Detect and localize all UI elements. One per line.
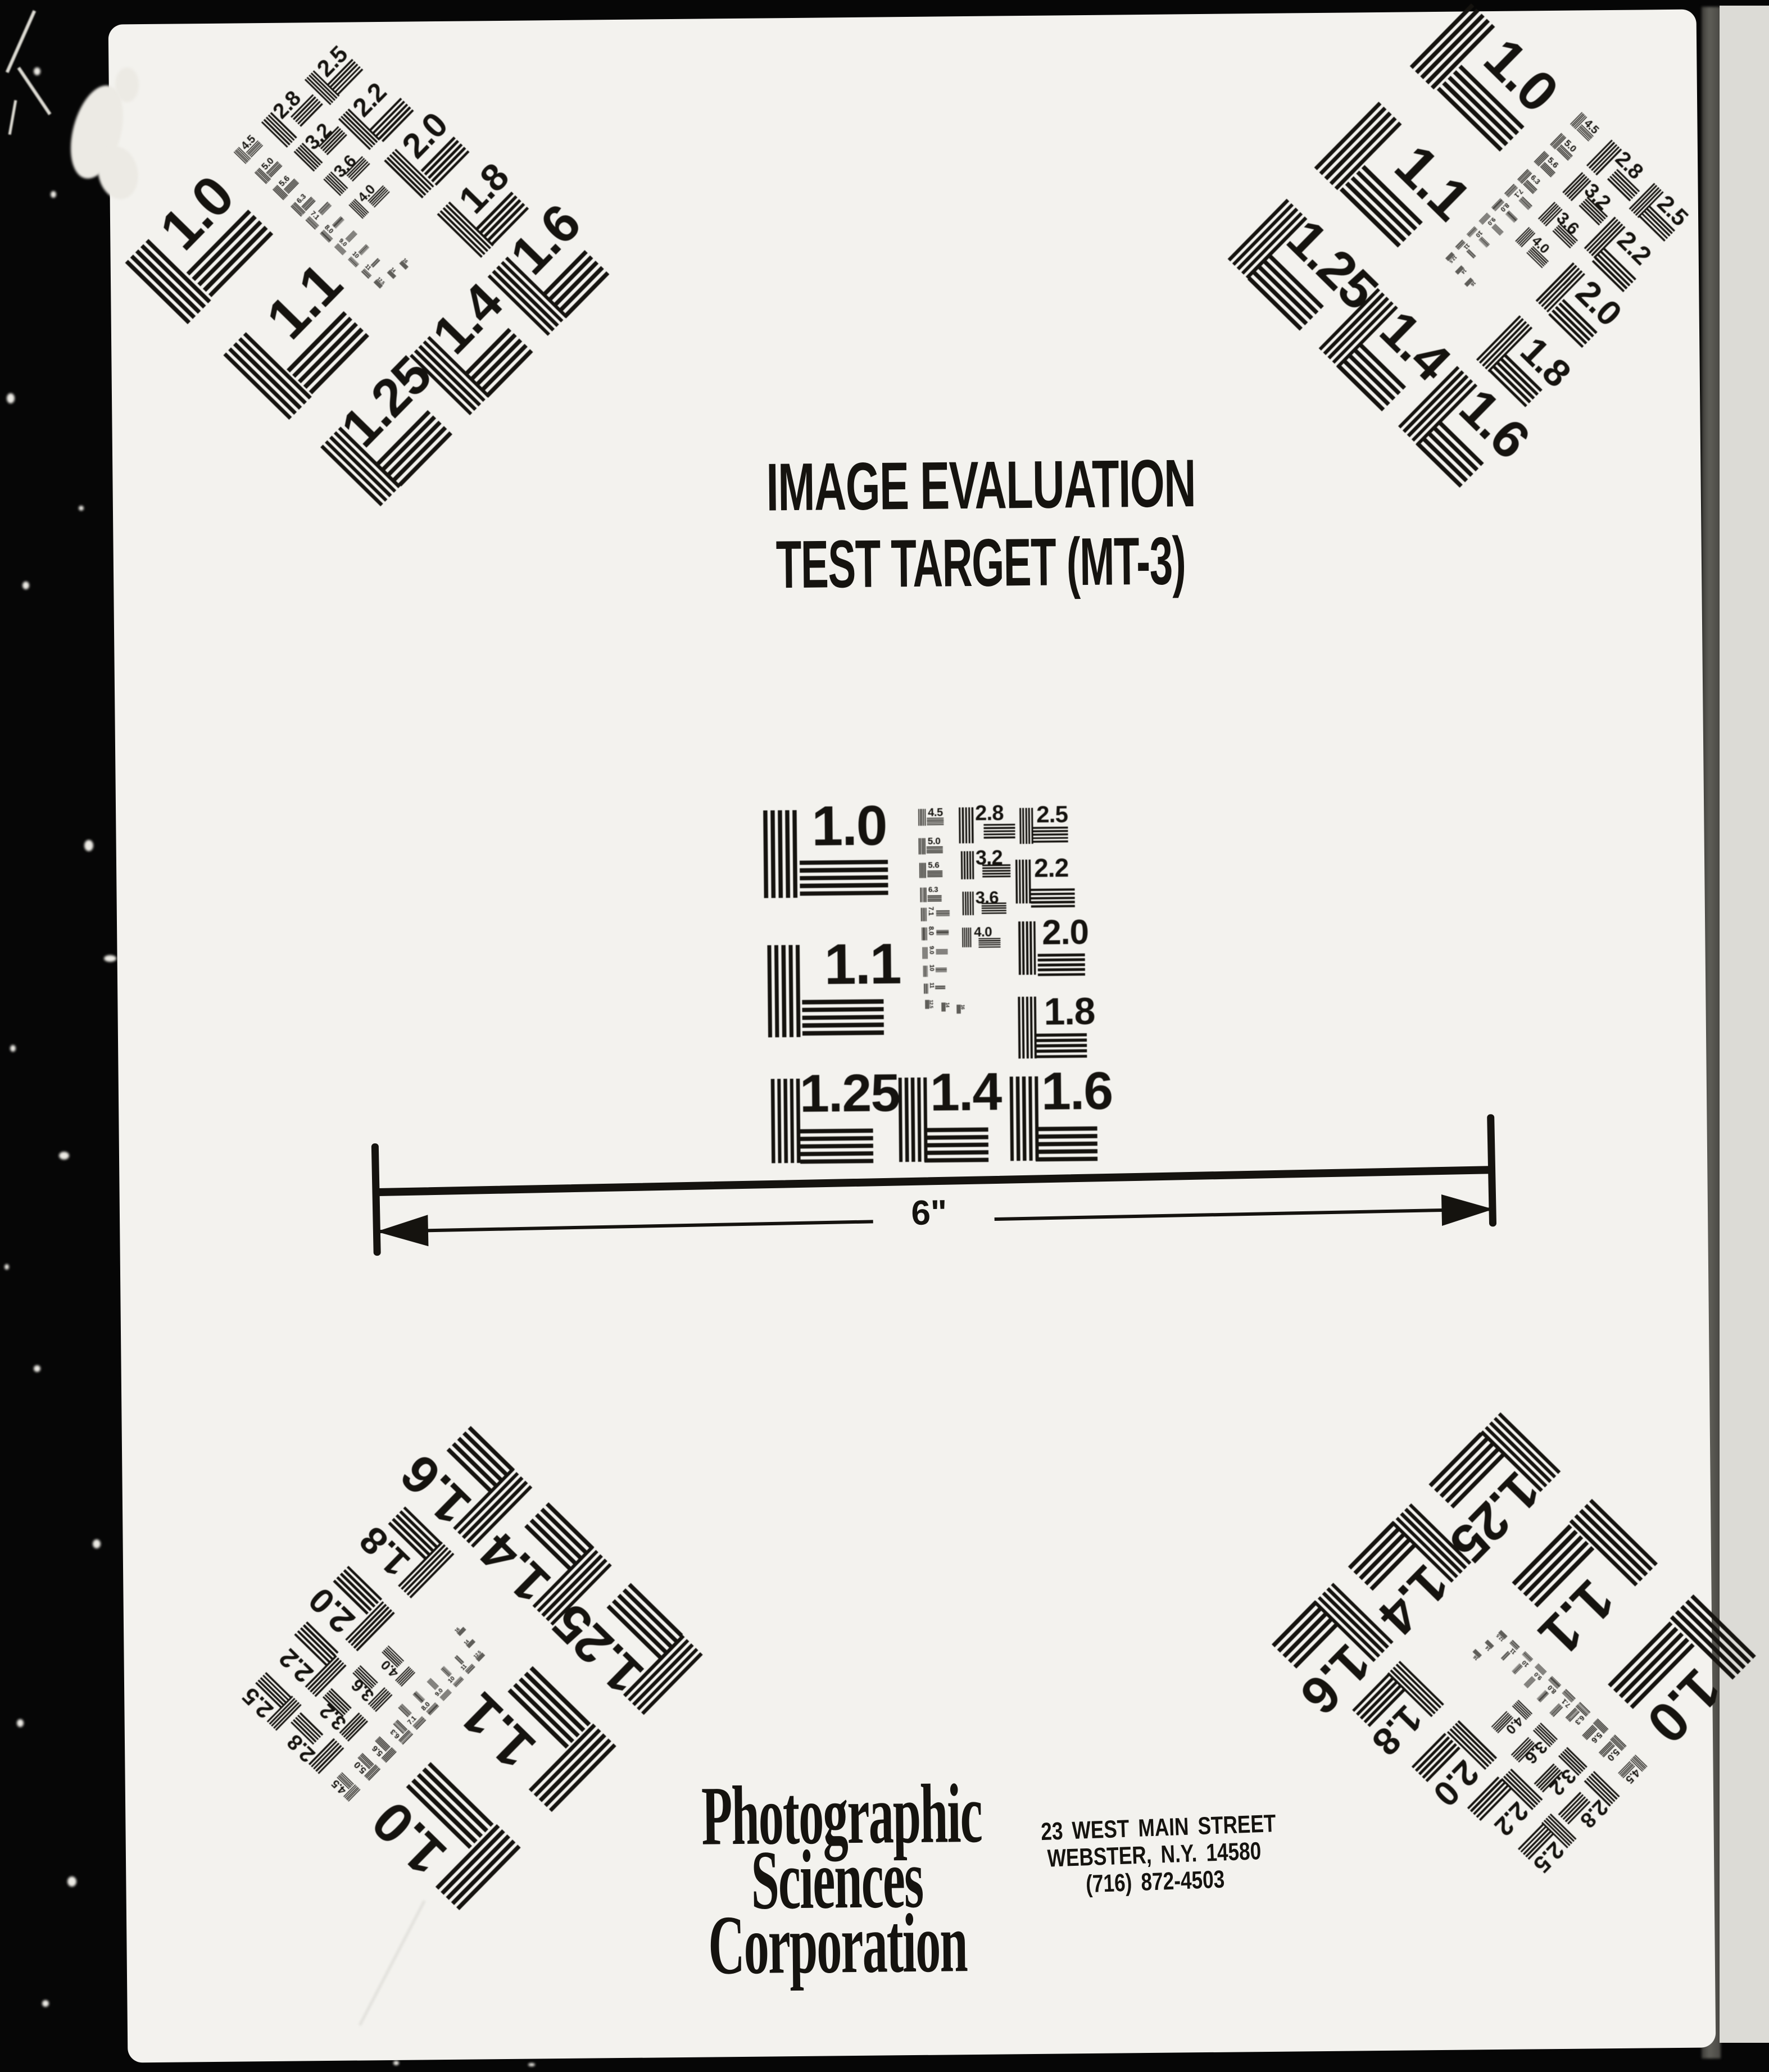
resolution-label-9.0: 9.0 [928, 946, 934, 955]
resolution-label-12.5: 12.5 [928, 1000, 933, 1008]
micro-bars-7.1 [1519, 197, 1532, 210]
film-speckle [59, 1152, 69, 1160]
resolution-label-4.0: 4.0 [974, 926, 992, 939]
micro-bars-6.3 [927, 895, 942, 901]
micro-bars-10 [358, 244, 369, 256]
arrow-left-icon [376, 1215, 428, 1247]
horizontal-bars-3.2 [982, 864, 1010, 877]
film-speckle [34, 1365, 40, 1372]
vertical-bars-2.5 [1019, 808, 1033, 844]
title-line-1: IMAGE EVALUATION [766, 446, 1063, 526]
micro-bars-9.0 [936, 949, 947, 955]
film-speckle [84, 840, 93, 851]
micro-bars-9.0 [1524, 1676, 1536, 1688]
micro-bars-5.0 [927, 847, 943, 854]
micro-bars-11 [936, 985, 946, 990]
micro-bars-7.1 [1549, 1703, 1563, 1717]
resolution-pattern-top-right: 1.01.11.251.41.62.52.22.01.82.83.23.64.0… [1220, 3, 1709, 492]
horizontal-bars-2.2 [1031, 888, 1074, 908]
resolution-label-11: 11 [928, 983, 934, 988]
resolution-label-1.6: 1.6 [1041, 1065, 1113, 1119]
arrow-right-icon [1441, 1193, 1494, 1226]
scanned-test-target-sheet: { "document": { "title_line1": "IMAGE EV… [0, 0, 1769, 2072]
company-address-block: 23 WEST MAIN STREET WEBSTER, N.Y. 14580 … [1013, 1810, 1296, 1901]
film-speckle [115, 67, 139, 102]
film-edge-light-band [1720, 6, 1769, 2043]
marker-bar-5.0 [919, 838, 926, 855]
film-scratch [6, 10, 36, 73]
film-scratch [359, 1900, 425, 2026]
ruler-bar [374, 1166, 1494, 1196]
horizontal-bars-1.0 [800, 860, 888, 896]
resolution-label-1.1: 1.1 [824, 935, 901, 993]
film-speckle [67, 1876, 76, 1887]
resolution-label-1.0: 1.0 [811, 797, 887, 854]
vertical-bars-2.2 [1015, 860, 1031, 903]
resolution-label-8.0: 8.0 [928, 926, 935, 935]
film-speckle [22, 581, 29, 589]
micro-bars-9.0 [427, 1678, 439, 1690]
horizontal-bars-2.0 [1038, 953, 1085, 976]
vertical-bars-2.0 [1018, 921, 1036, 975]
film-speckle [528, 2063, 535, 2066]
micro-bars-8.0 [332, 216, 344, 229]
resolution-pattern-top-left: 1.01.11.251.41.62.52.22.01.82.83.23.64.0… [124, 25, 614, 514]
horizontal-bars-2.5 [1033, 826, 1068, 843]
marker-bar-4.5 [918, 809, 926, 826]
resolution-label-2.8: 2.8 [975, 802, 1004, 824]
marker-bar-8.0 [922, 928, 927, 940]
micro-bars-5.6 [927, 871, 942, 878]
film-speckle [79, 506, 84, 511]
micro-bars-7.1 [936, 910, 950, 916]
marker-bar-11 [924, 984, 928, 994]
micro-bars-8.0 [936, 930, 949, 935]
vertical-bars-2.8 [959, 807, 974, 843]
ruler-dimension-line-left [380, 1220, 873, 1233]
micro-bars-8.0 [412, 1691, 425, 1703]
resolution-label-2.0: 2.0 [1042, 915, 1088, 951]
micro-bars-7.1 [398, 1703, 411, 1717]
marker-bar-9.0 [922, 947, 927, 959]
company-name-block: Photographic Sciences Corporation [611, 1781, 1063, 1979]
page-title: IMAGE EVALUATION TEST TARGET (MT-3) [690, 445, 1141, 605]
ruler-length-label: 6" [895, 1192, 963, 1233]
film-speckle [7, 393, 15, 403]
resolution-label-1.4: 1.4 [930, 1065, 1001, 1119]
resolution-label-2.5: 2.5 [1036, 802, 1068, 826]
resolution-pattern-center: 1.01.11.251.41.62.52.22.01.82.83.23.64.0… [763, 806, 1099, 1169]
marker-bar-6.3 [1576, 1702, 1590, 1717]
resolution-pattern-bottom-right: 1.01.11.251.41.62.52.22.01.82.83.23.64.0… [1267, 1405, 1757, 1894]
vertical-bars-3.6 [963, 892, 974, 915]
film-speckle [4, 1264, 9, 1270]
vertical-bars-1.0 [763, 810, 797, 898]
film-speckle [93, 1539, 101, 1548]
resolution-label-16: 16 [960, 1005, 964, 1010]
film-speckle [51, 191, 56, 198]
film-speckle [393, 2061, 399, 2065]
resolution-label-14: 14 [945, 1002, 949, 1007]
micro-bars-10 [1478, 237, 1490, 248]
vertical-bars-3.2 [961, 851, 974, 879]
film-speckle [10, 1045, 16, 1052]
horizontal-bars-3.6 [982, 902, 1006, 914]
six-inch-ruler: 6" [371, 1116, 1498, 1260]
resolution-label-7.1: 7.1 [928, 907, 935, 916]
horizontal-bars-2.8 [983, 824, 1015, 839]
film-speckle [17, 1719, 24, 1727]
film-speckle [42, 2000, 49, 2007]
marker-bar-6.3 [920, 888, 926, 902]
micro-bars-11 [1466, 249, 1476, 259]
vertical-bars-1.8 [1018, 997, 1037, 1058]
micro-bars-8.0 [1505, 210, 1518, 223]
micro-bars-4.5 [927, 817, 944, 825]
film-speckle [34, 67, 40, 75]
title-line-2: TEST TARGET (MT-3) [775, 524, 1055, 604]
test-target-page: IMAGE EVALUATION TEST TARGET (MT-3) 1.01… [108, 10, 1716, 2063]
marker-bar-5.6 [919, 863, 926, 878]
resolution-label-1.8: 1.8 [1044, 992, 1095, 1031]
marker-bar-10 [923, 966, 928, 977]
resolution-label-4.5: 4.5 [928, 807, 943, 818]
ruler-dimension-line-right [995, 1207, 1490, 1221]
marker-bar-7.1 [921, 908, 927, 921]
horizontal-bars-1.1 [802, 999, 884, 1035]
micro-bars-11 [371, 258, 381, 268]
resolution-label-10: 10 [928, 965, 934, 971]
micro-bars-7.1 [318, 202, 332, 215]
vertical-bars-1.1 [767, 945, 801, 1038]
horizontal-bars-1.8 [1035, 1033, 1087, 1058]
resolution-label-5.6: 5.6 [928, 861, 939, 870]
micro-bars-9.0 [1491, 224, 1503, 235]
resolution-label-5.0: 5.0 [928, 837, 941, 846]
resolution-label-1.25: 1.25 [800, 1066, 900, 1121]
micro-bars-10 [1512, 1663, 1523, 1674]
film-scratch [8, 100, 17, 135]
film-speckle [104, 955, 116, 962]
vertical-bars-4.0 [962, 928, 971, 947]
micro-bars-11 [1500, 1651, 1511, 1661]
horizontal-bars-4.0 [978, 938, 1000, 947]
micro-bars-8.0 [1536, 1690, 1549, 1703]
micro-bars-9.0 [346, 230, 357, 242]
resolution-label-6.3: 6.3 [928, 886, 938, 893]
micro-bars-10 [936, 967, 947, 973]
resolution-label-2.2: 2.2 [1034, 855, 1069, 881]
company-name-line-3: Corporation [702, 1911, 973, 1978]
